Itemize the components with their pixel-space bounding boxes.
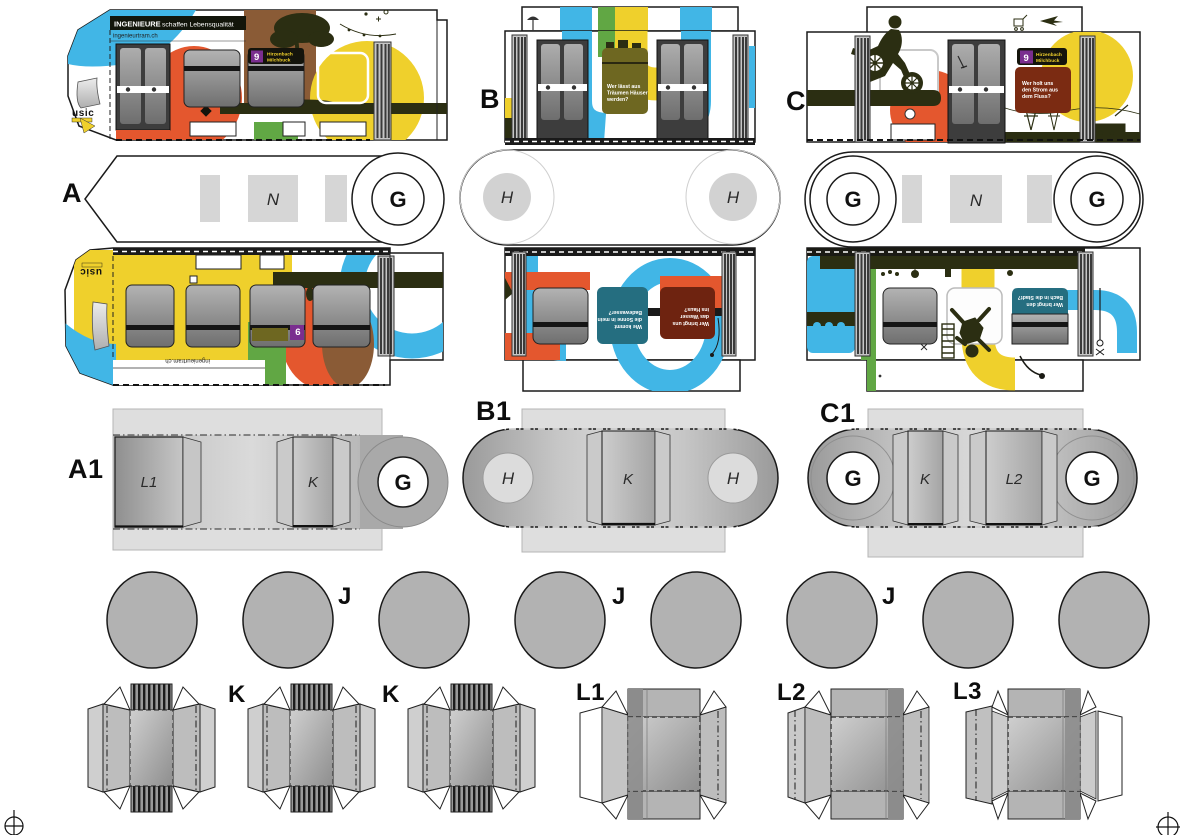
svg-text:usic: usic [80, 266, 102, 277]
box-slot-k: K [587, 431, 670, 525]
route-dest-1: Hirzenbach [1036, 52, 1062, 58]
fold-box-k-3 [408, 683, 538, 823]
part-letter-h: H [501, 188, 514, 207]
wheel-disc [1059, 572, 1149, 668]
small-hatch [190, 276, 197, 283]
bellows-left [855, 252, 870, 356]
panel-center [290, 710, 333, 786]
svg-text:Wie kommt: Wie kommt [614, 323, 642, 329]
roof-hatch-1 [200, 175, 220, 222]
slot-letter-l1: L1 [141, 474, 158, 491]
tram-a-side-2: 9 ingenieurtram.ch INGENIEURE schaffen L… [60, 248, 455, 393]
wheel-discs-row: J J J [60, 564, 1160, 676]
panel-center [450, 710, 493, 786]
part-label-a: A [62, 180, 82, 207]
wheel-kicked-2 [901, 72, 923, 94]
part-letter-g: G [844, 187, 861, 212]
svg-text:Wer bringt den: Wer bringt den [1026, 301, 1063, 307]
route-sign: 9 Hirzenbach Milchbuck [1017, 48, 1067, 65]
box-slot-l2: L2 [970, 431, 1057, 525]
box-slot-k: K [893, 431, 958, 525]
skirt-box-3 [320, 122, 366, 136]
roof-part-b: H H [455, 147, 785, 252]
tram-c-side-2: Wer bringt den Bach in die Stadt? [795, 248, 1145, 393]
panel-left [992, 711, 1008, 799]
part-label-k1: K [228, 683, 246, 707]
door-double-right [657, 40, 708, 142]
windshield [92, 302, 109, 350]
olive-patch [252, 328, 288, 341]
svg-text:die Sonne in mein: die Sonne in mein [598, 316, 642, 322]
band-connector-1 [648, 308, 660, 316]
part-letter-h: H [727, 188, 740, 207]
flap-outer-left [788, 707, 805, 803]
part-letter-g: G [844, 466, 861, 491]
slot-letter-l2: L2 [1006, 471, 1023, 488]
wheel-disc [107, 572, 197, 668]
box-slot-k: K [277, 437, 350, 527]
tram-b-side-2: Wie kommt die Sonne in mein Badewasser? … [500, 248, 760, 393]
fold-box-k-2 [248, 683, 378, 823]
panel-white-left [580, 707, 602, 803]
svg-text:Wer bringt uns: Wer bringt uns [672, 320, 709, 326]
wheel-disc [241, 570, 336, 671]
campaign-website: ingenieurtram.ch [113, 34, 158, 40]
slogan-panel-bath-flipped: Wie kommt die Sonne in mein Badewasser? [597, 287, 648, 344]
bellows-right [722, 252, 736, 356]
bellows-right [1080, 36, 1095, 142]
svg-text:das Wasser: das Wasser [680, 313, 709, 319]
part-letter-g: G [1088, 187, 1105, 212]
bellows-left [512, 35, 527, 142]
ladder-icon [942, 324, 954, 358]
part-letter-g: G [394, 470, 411, 495]
campaign-slogan-bold: INGENIEURE [114, 20, 161, 29]
flap-outer-right [360, 704, 375, 792]
usic-logo-flipped: usic [80, 263, 102, 277]
windshield [77, 78, 100, 108]
part-label-c: C [786, 88, 806, 115]
box-slot-l1: L1 [115, 437, 201, 527]
slot-letter-k: K [623, 471, 634, 488]
skirt-box-2 [283, 122, 305, 136]
panel-right [903, 707, 929, 803]
papercraft-sheet: INGENIEURE schaffen Lebensqualität ingen… [0, 0, 1199, 835]
door-double [948, 40, 1005, 143]
campaign-slogan-rest: schaffen Lebensqualität [162, 22, 234, 29]
wheel-disc [921, 570, 1016, 671]
panel-left [602, 707, 628, 803]
bellows-left [512, 252, 526, 356]
flap-livery [560, 7, 712, 31]
roof-hatch-1 [902, 175, 922, 223]
part-letter-h: H [502, 469, 515, 488]
bellows [378, 256, 394, 356]
wheel-disc [787, 572, 877, 668]
roof-hatch-2 [325, 175, 347, 222]
panel-left [805, 707, 831, 803]
flap-triangle [992, 691, 1008, 715]
part-label-l2: L2 [777, 681, 806, 705]
skirt-box-2 [260, 255, 284, 269]
roof-part-a: N G [60, 147, 460, 252]
slot-letter-k: K [308, 474, 319, 491]
tram-a-side-1: INGENIEURE schaffen Lebensqualität ingen… [64, 6, 454, 148]
grille-tab-bottom [131, 786, 172, 812]
panel-center [130, 710, 173, 786]
flap-outer-left [408, 704, 423, 792]
route-sign: 9 Hirzenbach Milchbuck [248, 48, 304, 64]
flap-outer-right [520, 704, 535, 792]
svg-text:ingenieurtram.ch: ingenieurtram.ch [165, 357, 210, 363]
panel-white-right [1098, 711, 1122, 801]
part-label-b1: B1 [476, 398, 512, 425]
part-label-l3: L3 [953, 680, 982, 704]
part-label-j: J [612, 583, 625, 610]
campaign-banner-flipped: ingenieurtram.ch INGENIEURE schaffen Leb… [113, 357, 265, 385]
fold-box-k-1 [88, 683, 218, 823]
flap-outer-left [88, 704, 103, 792]
route-line-number: 9 [1024, 53, 1029, 64]
part-letter-n: N [970, 191, 983, 210]
panel-outer-left [966, 706, 992, 804]
bellows [374, 42, 391, 140]
roof-part-c: N G G [790, 147, 1195, 252]
roof-hatch-2 [1027, 175, 1052, 223]
fold-box-l2 [783, 683, 943, 828]
wheel-disc [377, 570, 470, 669]
grille-tab-top [451, 684, 492, 710]
part-label-b: B [480, 86, 500, 113]
wheel-disc [649, 570, 742, 669]
window [533, 288, 588, 344]
route-dest-2: Milchbuck [267, 58, 291, 64]
svg-text:den Strom aus: den Strom aus [1022, 88, 1058, 94]
door-double [116, 44, 170, 140]
svg-text:9: 9 [295, 326, 300, 337]
svg-text:schaffen Lebensqualität: schaffen Lebensqualität [140, 372, 212, 379]
skirt-box-1 [190, 122, 236, 136]
registration-mark-left [2, 806, 28, 835]
bellows-left [855, 36, 870, 142]
part-label-j: J [882, 583, 895, 610]
svg-text:INGENIEURE: INGENIEURE [213, 372, 260, 381]
grille-tab-top [291, 684, 332, 710]
panel-right [1080, 711, 1096, 799]
panel-right [700, 707, 726, 803]
part-label-k2: K [382, 683, 400, 707]
flap-triangle [1080, 691, 1096, 715]
svg-text:dem Fluss?: dem Fluss? [1022, 94, 1051, 100]
window-left [883, 288, 937, 344]
underbody-part-a1: G L1 K [60, 402, 450, 557]
door-double-left [537, 40, 588, 142]
part-letter-n: N [267, 190, 280, 209]
tram-c-side-1: 9 Hirzenbach Milchbuck Wer holt uns den … [795, 6, 1145, 151]
skirt-box-1 [196, 255, 241, 269]
route-dest-1: Hirzenbach [267, 52, 293, 58]
slot-letter-k: K [920, 471, 931, 488]
slogan-panel-power: Wer holt uns den Strom aus dem Fluss? [1015, 67, 1071, 113]
slogan-panel-houses: Wer lässt aus Träumen Häuser werden? [602, 40, 648, 114]
wheel-disc [515, 572, 605, 668]
part-label-l1: L1 [576, 681, 605, 705]
flap-outer-left [248, 704, 263, 792]
svg-text:Wer lässt aus: Wer lässt aus [607, 84, 640, 90]
underbody-part-b1: H H K [450, 402, 790, 562]
svg-text:Bach in die Stadt?: Bach in die Stadt? [1018, 294, 1063, 300]
slogan-panel-creek-flipped: Wer bringt den Bach in die Stadt? [1012, 288, 1068, 344]
window-1 [184, 50, 240, 107]
svg-text:usic: usic [72, 108, 94, 119]
svg-text:Badewasser?: Badewasser? [609, 309, 642, 315]
part-label-a1: A1 [68, 456, 104, 483]
svg-text:Träumen Häuser: Träumen Häuser [607, 91, 648, 97]
skirt-box [891, 124, 935, 140]
grille-tab-top [131, 684, 172, 710]
svg-text:ins Haus?: ins Haus? [684, 306, 709, 312]
part-label-c1: C1 [820, 400, 856, 427]
svg-text:werden?: werden? [606, 97, 628, 103]
svg-text:Wer holt uns: Wer holt uns [1022, 81, 1053, 87]
part-letter-g: G [1083, 466, 1100, 491]
part-letter-h: H [727, 469, 740, 488]
registration-mark-right [1148, 810, 1188, 835]
grille-tab-bottom [451, 786, 492, 812]
grille-tab-bottom [291, 786, 332, 812]
bellows-right [1078, 252, 1093, 356]
part-letter-g: G [389, 187, 406, 212]
bellows-right [733, 35, 748, 142]
route-line-number: 9 [254, 52, 259, 63]
tram-b-side-1: Wer lässt aus Träumen Häuser werden? [500, 6, 760, 151]
part-label-j: J [338, 583, 351, 610]
flap-outer-right [200, 704, 215, 792]
route-line-flipped: 9 [290, 325, 304, 340]
slogan-panel-water-flipped: Wer bringt uns das Wasser ins Haus? [660, 287, 715, 339]
route-dest-2: Milchbuck [1036, 58, 1060, 64]
